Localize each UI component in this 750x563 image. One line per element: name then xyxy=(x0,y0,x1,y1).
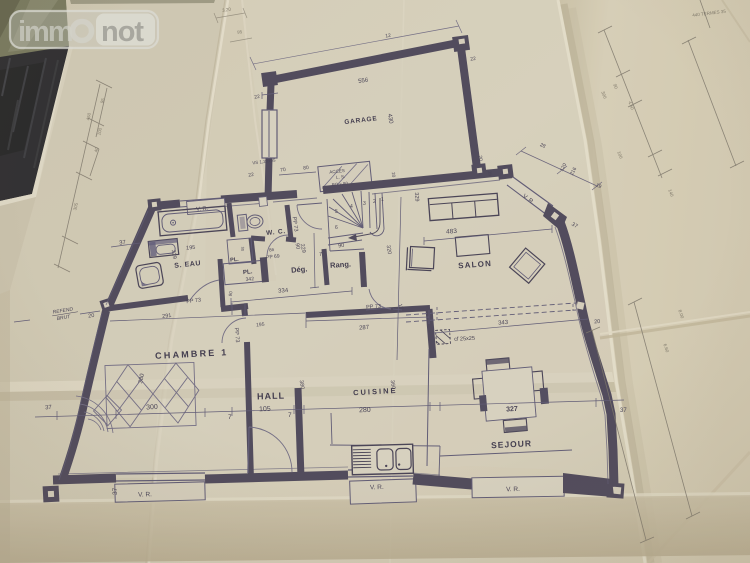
svg-text:not: not xyxy=(101,16,144,48)
svg-text:imm: imm xyxy=(18,16,72,48)
